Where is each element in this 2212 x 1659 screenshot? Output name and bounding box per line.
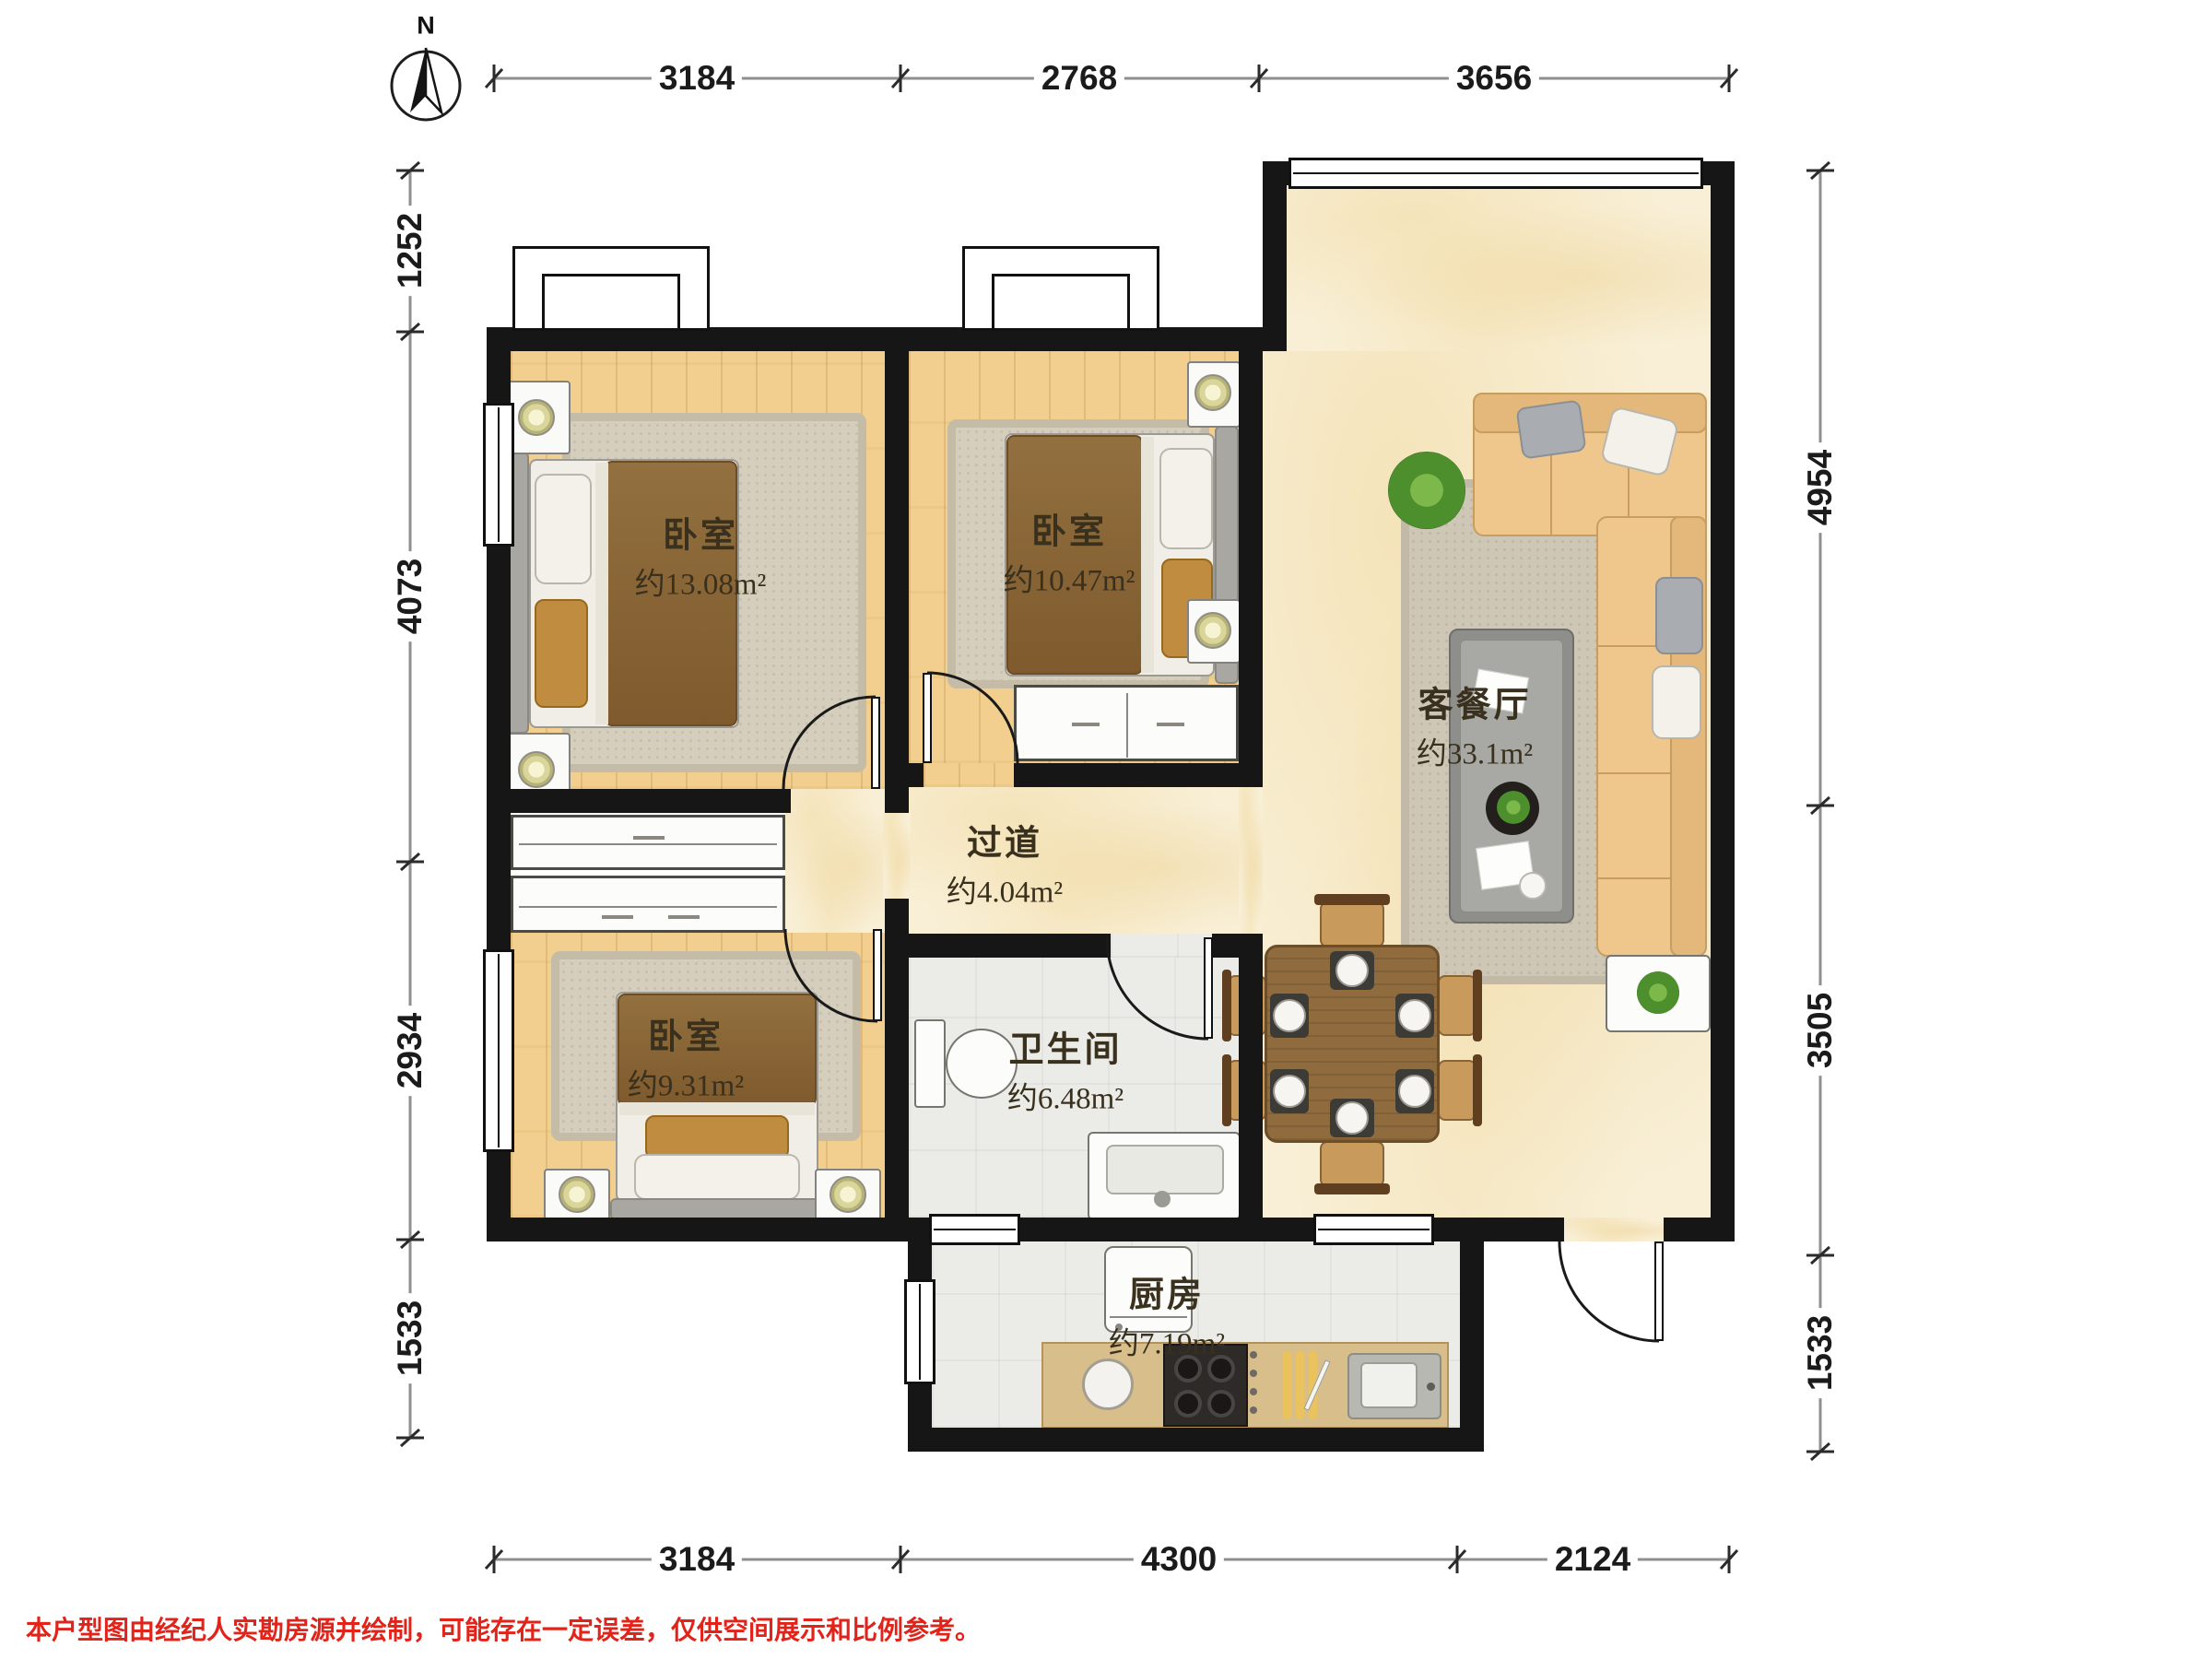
- dim-top-2: 2768: [1034, 59, 1124, 98]
- bedroom3-pillow-tan: [645, 1115, 789, 1159]
- cutting-board: [1283, 1351, 1331, 1419]
- hallway-area: 约4.04m²: [947, 867, 1063, 912]
- wall-right-outer: [1711, 161, 1735, 1241]
- floor-plan-canvas: N 卧室 约13.08m² 卧室 约10.47m² 客餐厅 约33.1m² 过道…: [0, 0, 2212, 1659]
- wall-bedroom2-bottom-stub: [909, 763, 924, 787]
- wall-kitchen-right: [1460, 1241, 1484, 1452]
- bedroom2-label: 卧室 约10.47m²: [1004, 503, 1135, 600]
- wall-bedroom2-right: [1239, 327, 1263, 763]
- living-floor-upper: [1287, 185, 1711, 351]
- plate: [1335, 954, 1369, 987]
- bedroom1-lamp-top-icon: [518, 399, 555, 436]
- kitchen-label: 厨房 约7.19m²: [1109, 1266, 1225, 1363]
- hallway-spur-floor2: [883, 811, 911, 900]
- toilet-tank: [914, 1019, 946, 1108]
- bedroom3-area: 约9.31m²: [628, 1061, 744, 1105]
- dining-chair-left2-rail: [1222, 1054, 1231, 1126]
- bathroom-sink: [1088, 1132, 1241, 1220]
- hallway-label: 过道 约4.04m²: [947, 815, 1063, 912]
- entrance-threshold: [1564, 1218, 1664, 1241]
- bedroom2-pillow-white: [1159, 448, 1213, 549]
- kitchen-sink-bowl: [1082, 1359, 1134, 1410]
- plate: [1273, 1075, 1306, 1108]
- wall-living-bottom-left: [1484, 1218, 1564, 1241]
- dim-bottom-3: 2124: [1547, 1540, 1638, 1579]
- dining-chair-bottom: [1320, 1141, 1384, 1187]
- dining-chair-right2-rail: [1473, 1054, 1482, 1126]
- window-dining-kitchen: [1313, 1214, 1434, 1245]
- wall-bedroom1-bottom: [487, 789, 791, 813]
- bedroom1-name: 卧室: [635, 507, 767, 558]
- bathroom-name: 卫生间: [1007, 1021, 1124, 1072]
- bedroom1-duvet-fold: [595, 463, 608, 724]
- bay-window-bedroom2-inner: [992, 274, 1130, 331]
- bedroom3-wardrobe: [511, 876, 785, 933]
- wall-bedroom2-bottom: [1014, 763, 1263, 787]
- plate: [1273, 999, 1306, 1032]
- bedroom1-door-leaf: [871, 697, 880, 789]
- compass-north-label: N: [417, 12, 435, 41]
- dining-chair-left1-rail: [1222, 970, 1231, 1041]
- dim-right-2: 3505: [1801, 985, 1840, 1076]
- knife-icon: [1303, 1359, 1330, 1410]
- hallway-name: 过道: [947, 815, 1063, 865]
- dim-top-3: 3656: [1449, 59, 1539, 98]
- dim-bottom-1: 3184: [652, 1540, 742, 1579]
- side-table-plant-icon: [1637, 971, 1679, 1014]
- bedroom2-door-leaf: [923, 673, 932, 763]
- compass-arrow-right: [426, 48, 441, 112]
- coffee-table-plant-icon: [1497, 791, 1530, 824]
- window-bedroom3-left: [483, 949, 514, 1152]
- bedroom2-duvet-fold: [1141, 437, 1154, 673]
- bathroom-door-leaf: [1204, 937, 1213, 1039]
- wall-bathroom-left: [885, 899, 909, 1241]
- wall-living-bottom-right: [1664, 1218, 1735, 1241]
- bedroom1-label: 卧室 约13.08m²: [635, 507, 767, 604]
- stove-controls: [1250, 1349, 1259, 1423]
- bedroom3-lamp-right-icon: [829, 1176, 866, 1213]
- bedroom2-wardrobe: [1014, 685, 1239, 761]
- dim-right-3: 1533: [1801, 1308, 1840, 1398]
- dining-chair-top: [1320, 901, 1384, 947]
- living-area: 约33.1m²: [1417, 729, 1533, 773]
- bathroom-area: 约6.48m²: [1007, 1074, 1124, 1118]
- living-label: 客餐厅 约33.1m²: [1417, 677, 1533, 773]
- window-living-top: [1288, 158, 1703, 189]
- dim-left-3: 2934: [391, 1006, 429, 1096]
- dining-chair-right1-rail: [1473, 970, 1482, 1041]
- bedroom2-door-threshold: [924, 763, 1014, 787]
- wall-living-connector: [1263, 161, 1287, 351]
- bathroom-label: 卫生间 约6.48m²: [1007, 1021, 1124, 1118]
- bedroom3-name: 卧室: [628, 1008, 744, 1059]
- bedroom3-pillow-white: [634, 1154, 800, 1200]
- dining-chair-right1: [1438, 975, 1477, 1036]
- bedroom2-lamp-bottom-icon: [1194, 612, 1231, 649]
- wall-bedroom3-bottom: [487, 1218, 908, 1241]
- bedroom3-lamp-left-icon: [559, 1176, 595, 1213]
- bedroom1-pillow-white: [535, 474, 592, 584]
- kitchen-area: 约7.19m²: [1109, 1319, 1225, 1363]
- dining-chair-top-rail: [1314, 894, 1390, 905]
- bedroom3-door-leaf: [873, 929, 882, 1021]
- hall-living-strip-floor: [1239, 787, 1263, 934]
- faucet-icon: [1154, 1191, 1171, 1207]
- dim-left-4: 1533: [391, 1293, 429, 1383]
- dining-chair-right2: [1438, 1060, 1477, 1121]
- dim-left-2: 4073: [391, 551, 429, 641]
- wall-kitchen-bottom: [908, 1428, 1484, 1452]
- bedroom3-label: 卧室 约9.31m²: [628, 1008, 744, 1105]
- bedroom2-name: 卧室: [1004, 503, 1135, 554]
- kitchen-name: 厨房: [1109, 1266, 1225, 1317]
- dining-chair-bottom-rail: [1314, 1183, 1390, 1194]
- entrance-door-leaf: [1654, 1241, 1664, 1341]
- window-bathroom-bottom: [929, 1214, 1020, 1245]
- bedroom1-pillow-tan: [535, 599, 588, 708]
- bathroom-door-threshold: [1111, 934, 1212, 958]
- entrance-door-arc: [1559, 1241, 1659, 1341]
- sofa-pillow-gray2: [1655, 577, 1703, 654]
- dim-bottom-2: 4300: [1134, 1540, 1224, 1579]
- kitchen-basin: [1347, 1353, 1441, 1419]
- window-kitchen-left: [904, 1279, 935, 1384]
- dim-top-1: 3184: [652, 59, 742, 98]
- wall-bathroom-top-left: [909, 934, 1111, 958]
- bedroom1-area: 约13.08m²: [635, 559, 767, 604]
- plate: [1335, 1101, 1369, 1135]
- bedroom2-area: 约10.47m²: [1004, 556, 1135, 600]
- floor-plant-icon: [1388, 452, 1465, 529]
- living-name: 客餐厅: [1417, 677, 1533, 727]
- disclaimer-text: 本户型图由经纪人实勘房源并绘制，可能存在一定误差，仅供空间展示和比例参考。: [26, 1610, 981, 1647]
- compass-arrow-left: [410, 48, 426, 112]
- window-bedroom1-left: [483, 403, 514, 547]
- plate: [1398, 999, 1431, 1032]
- bedroom1-lamp-bottom-icon: [518, 751, 555, 788]
- compass-circle: [392, 52, 460, 120]
- bedroom1-wardrobe: [511, 815, 785, 870]
- coffee-table-cup: [1519, 872, 1547, 900]
- wall-bedroom1-right: [885, 327, 909, 813]
- wall-bathroom-right: [1239, 934, 1263, 1241]
- plate: [1398, 1075, 1431, 1108]
- dim-left-1: 1252: [391, 206, 429, 296]
- dim-right-1: 4954: [1801, 442, 1840, 533]
- bay-window-bedroom1-inner: [542, 274, 680, 331]
- sofa-pillow-white2: [1652, 665, 1701, 739]
- sofa-pillow-gray1: [1515, 399, 1586, 459]
- hallway-spur-floor: [785, 789, 885, 933]
- bedroom2-lamp-top-icon: [1194, 374, 1231, 411]
